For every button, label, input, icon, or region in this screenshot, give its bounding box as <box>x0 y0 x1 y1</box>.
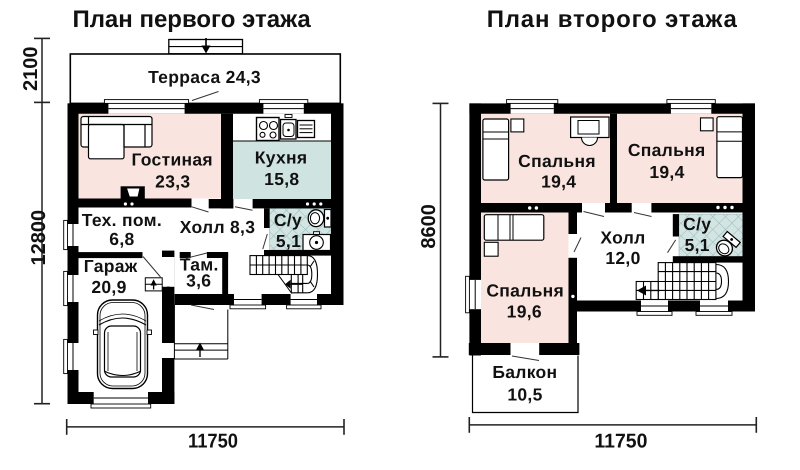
svg-text:Гостиная: Гостиная <box>131 149 212 169</box>
svg-text:6,8: 6,8 <box>109 229 134 249</box>
svg-text:23,3: 23,3 <box>155 171 190 191</box>
svg-text:19,4: 19,4 <box>649 162 684 182</box>
svg-text:10,5: 10,5 <box>507 385 542 405</box>
svg-text:Гараж: Гараж <box>84 256 138 276</box>
svg-text:15,8: 15,8 <box>264 169 299 189</box>
svg-text:2100: 2100 <box>20 47 42 92</box>
svg-text:11750: 11750 <box>188 431 238 453</box>
svg-text:8600: 8600 <box>418 204 440 249</box>
svg-text:3,6: 3,6 <box>186 271 211 291</box>
svg-text:С/у: С/у <box>683 214 711 234</box>
svg-text:19,4: 19,4 <box>541 172 576 192</box>
svg-text:Кухня: Кухня <box>255 148 308 168</box>
svg-text:Холл 8,3: Холл 8,3 <box>180 217 256 237</box>
svg-text:Холл: Холл <box>600 227 645 247</box>
svg-text:Спальня: Спальня <box>518 151 596 171</box>
svg-text:5,1: 5,1 <box>276 231 301 251</box>
svg-text:19,6: 19,6 <box>507 302 542 322</box>
svg-text:12800: 12800 <box>28 210 50 266</box>
svg-text:12,0: 12,0 <box>605 248 640 268</box>
svg-text:Балкон: Балкон <box>492 362 557 382</box>
svg-text:План первого этажа: План первого этажа <box>72 6 311 33</box>
svg-text:11750: 11750 <box>594 431 647 453</box>
svg-text:Терраса 24,3: Терраса 24,3 <box>148 67 261 87</box>
svg-text:5,1: 5,1 <box>685 235 710 255</box>
svg-text:План второго этажа: План второго этажа <box>487 6 738 33</box>
svg-text:С/у: С/у <box>274 210 302 230</box>
svg-text:Спальня: Спальня <box>486 281 564 301</box>
svg-text:Тех. пом.: Тех. пом. <box>82 210 162 230</box>
svg-text:20,9: 20,9 <box>91 277 126 297</box>
svg-text:Спальня: Спальня <box>628 140 706 160</box>
